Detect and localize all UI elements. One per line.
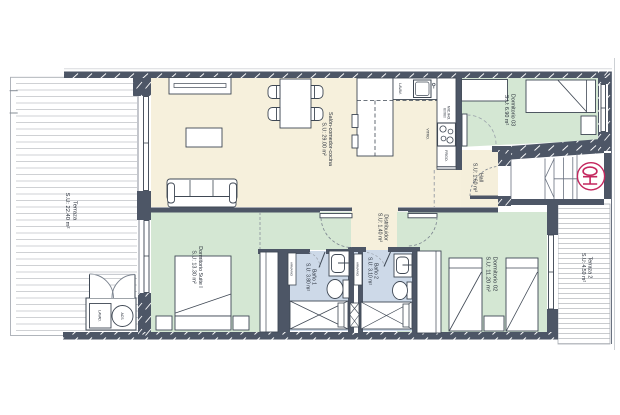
svg-text:S.U: 1.60 m²: S.U: 1.60 m² [471, 163, 477, 192]
svg-text:Baño 1: Baño 1 [311, 269, 317, 285]
svg-text:Dormitorio 03: Dormitorio 03 [509, 94, 515, 126]
svg-text:S.U: 13.30 m²: S.U: 13.30 m² [191, 250, 197, 283]
svg-text:S.U: 22.40 m²: S.U: 22.40 m² [64, 193, 70, 229]
svg-text:LAVAV.: LAVAV. [398, 83, 402, 94]
svg-text:ARMARIO: ARMARIO [356, 262, 360, 277]
svg-text:S.U: 1.40 m²: S.U: 1.40 m² [376, 213, 382, 242]
svg-text:ACS: ACS [120, 313, 124, 321]
svg-text:Distribuidor: Distribuidor [383, 214, 389, 241]
svg-text:Hall: Hall [478, 173, 484, 182]
svg-text:Terraza: Terraza [71, 201, 77, 221]
svg-text:S.U: 11.20 m²: S.U: 11.20 m² [485, 256, 491, 291]
svg-text:Baño 2: Baño 2 [373, 263, 379, 279]
svg-text:Salón-comedor-cocina: Salón-comedor-cocina [327, 112, 333, 166]
svg-text:LAVAD.: LAVAD. [98, 310, 102, 322]
svg-text:S.U: 3.80 m²: S.U: 3.80 m² [305, 263, 311, 291]
svg-text:S.U: 6.90 m²: S.U: 6.90 m² [503, 95, 509, 125]
svg-text:VITRO.: VITRO. [426, 128, 430, 139]
svg-text:Dormitorio 02: Dormitorio 02 [492, 257, 498, 292]
svg-text:60X60: 60X60 [442, 108, 446, 118]
svg-text:ARMARIO: ARMARIO [290, 262, 294, 277]
svg-text:S.U: 4.50 m²: S.U: 4.50 m² [580, 253, 586, 282]
svg-text:Dormitorio Suite I: Dormitorio Suite I [197, 246, 203, 288]
svg-text:S.U: 3.10 m²: S.U: 3.10 m² [367, 257, 373, 285]
svg-text:S.U: 29.00 m²: S.U: 29.00 m² [321, 122, 327, 155]
svg-text:FRGO.: FRGO. [444, 150, 448, 161]
svg-text:Terraza 2: Terraza 2 [586, 257, 592, 279]
